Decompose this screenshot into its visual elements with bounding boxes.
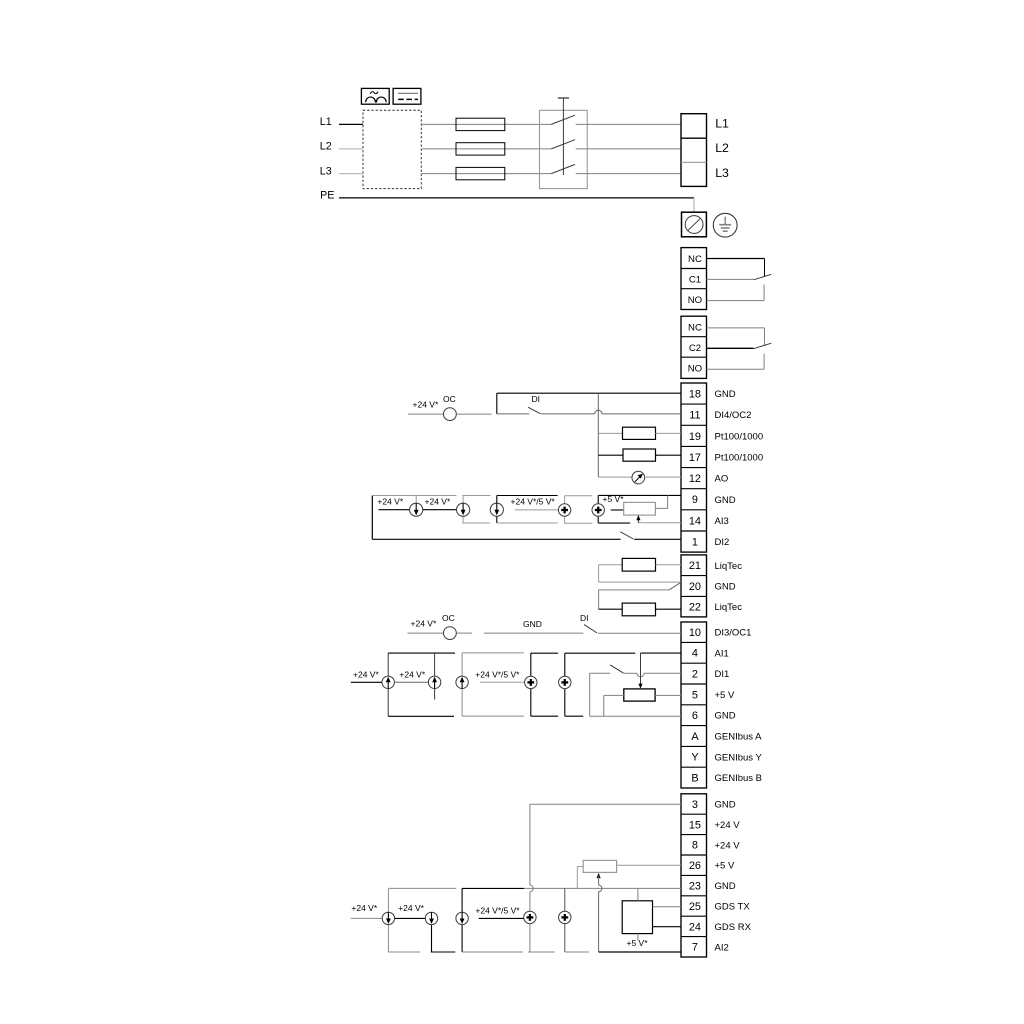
svg-text:17: 17	[689, 452, 701, 464]
svg-text:+24 V*: +24 V*	[351, 903, 377, 913]
svg-text:+24 V*/5 V*: +24 V*/5 V*	[475, 906, 520, 916]
svg-text:+5 V: +5 V	[715, 861, 735, 872]
svg-text:NC: NC	[688, 254, 702, 265]
svg-text:GND: GND	[715, 495, 736, 506]
svg-text:+5 V: +5 V	[715, 690, 735, 701]
svg-text:+5 V*: +5 V*	[626, 938, 648, 948]
svg-text:DI3/OC1: DI3/OC1	[715, 628, 752, 639]
svg-text:L1: L1	[320, 116, 332, 128]
svg-text:DI: DI	[532, 394, 541, 404]
svg-text:AO: AO	[715, 474, 729, 485]
svg-text:GENIbus B: GENIbus B	[715, 773, 763, 784]
svg-text:NO: NO	[688, 364, 702, 375]
svg-text:Y: Y	[691, 752, 699, 764]
svg-text:GND: GND	[715, 711, 736, 722]
svg-text:+24 V*: +24 V*	[411, 619, 437, 629]
svg-text:L2: L2	[715, 141, 729, 155]
svg-text:6: 6	[692, 710, 698, 722]
svg-text:+24 V*: +24 V*	[353, 669, 379, 679]
svg-text:24: 24	[689, 921, 701, 933]
svg-text:L3: L3	[715, 166, 729, 180]
svg-text:PE: PE	[320, 190, 334, 202]
svg-text:23: 23	[689, 881, 701, 893]
svg-text:C2: C2	[689, 343, 701, 354]
svg-text:AI3: AI3	[715, 516, 729, 527]
svg-text:L2: L2	[320, 141, 332, 153]
svg-text:22: 22	[689, 602, 701, 614]
svg-text:+24 V*: +24 V*	[425, 497, 451, 507]
svg-text:AI1: AI1	[715, 648, 729, 659]
svg-text:C1: C1	[689, 275, 701, 286]
svg-text:20: 20	[689, 581, 701, 593]
svg-text:+24 V: +24 V	[715, 840, 741, 851]
svg-text:GENIbus A: GENIbus A	[715, 732, 763, 743]
svg-text:GND: GND	[715, 389, 736, 400]
svg-text:LiqTec: LiqTec	[715, 561, 743, 572]
svg-text:OC: OC	[443, 394, 456, 404]
svg-text:3: 3	[692, 799, 698, 811]
svg-text:5: 5	[692, 689, 698, 701]
svg-text:+24 V*: +24 V*	[413, 399, 439, 409]
svg-text:12: 12	[689, 473, 701, 485]
svg-text:+24 V*/5 V*: +24 V*/5 V*	[475, 669, 520, 679]
svg-text:4: 4	[692, 648, 698, 660]
svg-text:LiqTec: LiqTec	[715, 602, 743, 613]
svg-text:AI2: AI2	[715, 942, 729, 953]
svg-text:+24 V*: +24 V*	[398, 903, 424, 913]
svg-text:Pt100/1000: Pt100/1000	[715, 453, 764, 464]
svg-text:B: B	[691, 773, 698, 785]
svg-text:19: 19	[689, 431, 701, 443]
svg-text:Pt100/1000: Pt100/1000	[715, 431, 764, 442]
svg-text:18: 18	[689, 388, 701, 400]
svg-text:GENIbus Y: GENIbus Y	[715, 752, 763, 763]
svg-text:DI2: DI2	[715, 537, 730, 548]
svg-text:+24 V: +24 V	[715, 820, 741, 831]
svg-text:+24 V*: +24 V*	[377, 497, 403, 507]
svg-text:GND: GND	[715, 582, 736, 593]
svg-text:25: 25	[689, 901, 701, 913]
svg-text:1: 1	[692, 536, 698, 548]
svg-text:+24 V*: +24 V*	[399, 669, 425, 679]
svg-text:DI4/OC2: DI4/OC2	[715, 410, 752, 421]
svg-text:7: 7	[692, 942, 698, 954]
svg-text:A: A	[691, 731, 699, 743]
svg-text:15: 15	[689, 819, 701, 831]
svg-text:8: 8	[692, 840, 698, 852]
svg-text:26: 26	[689, 860, 701, 872]
svg-text:10: 10	[689, 627, 701, 639]
svg-text:OC: OC	[442, 613, 455, 623]
svg-text:L1: L1	[715, 117, 729, 131]
svg-text:NO: NO	[688, 295, 702, 306]
svg-text:11: 11	[689, 410, 700, 422]
svg-text:GDS TX: GDS TX	[715, 902, 751, 913]
svg-text:NC: NC	[688, 322, 702, 333]
svg-text:14: 14	[689, 515, 701, 527]
svg-text:DI1: DI1	[715, 669, 730, 680]
svg-text:2: 2	[692, 669, 698, 681]
svg-text:GDS RX: GDS RX	[715, 922, 752, 933]
svg-text:21: 21	[689, 560, 701, 572]
svg-text:GND: GND	[715, 881, 736, 892]
svg-text:DI: DI	[580, 613, 589, 623]
svg-text:+24 V*/5 V*: +24 V*/5 V*	[511, 497, 556, 507]
svg-text:GND: GND	[523, 619, 542, 629]
svg-text:+5 V*: +5 V*	[603, 494, 625, 504]
svg-text:GND: GND	[715, 800, 736, 811]
svg-text:L3: L3	[320, 165, 332, 177]
svg-text:9: 9	[692, 494, 698, 506]
